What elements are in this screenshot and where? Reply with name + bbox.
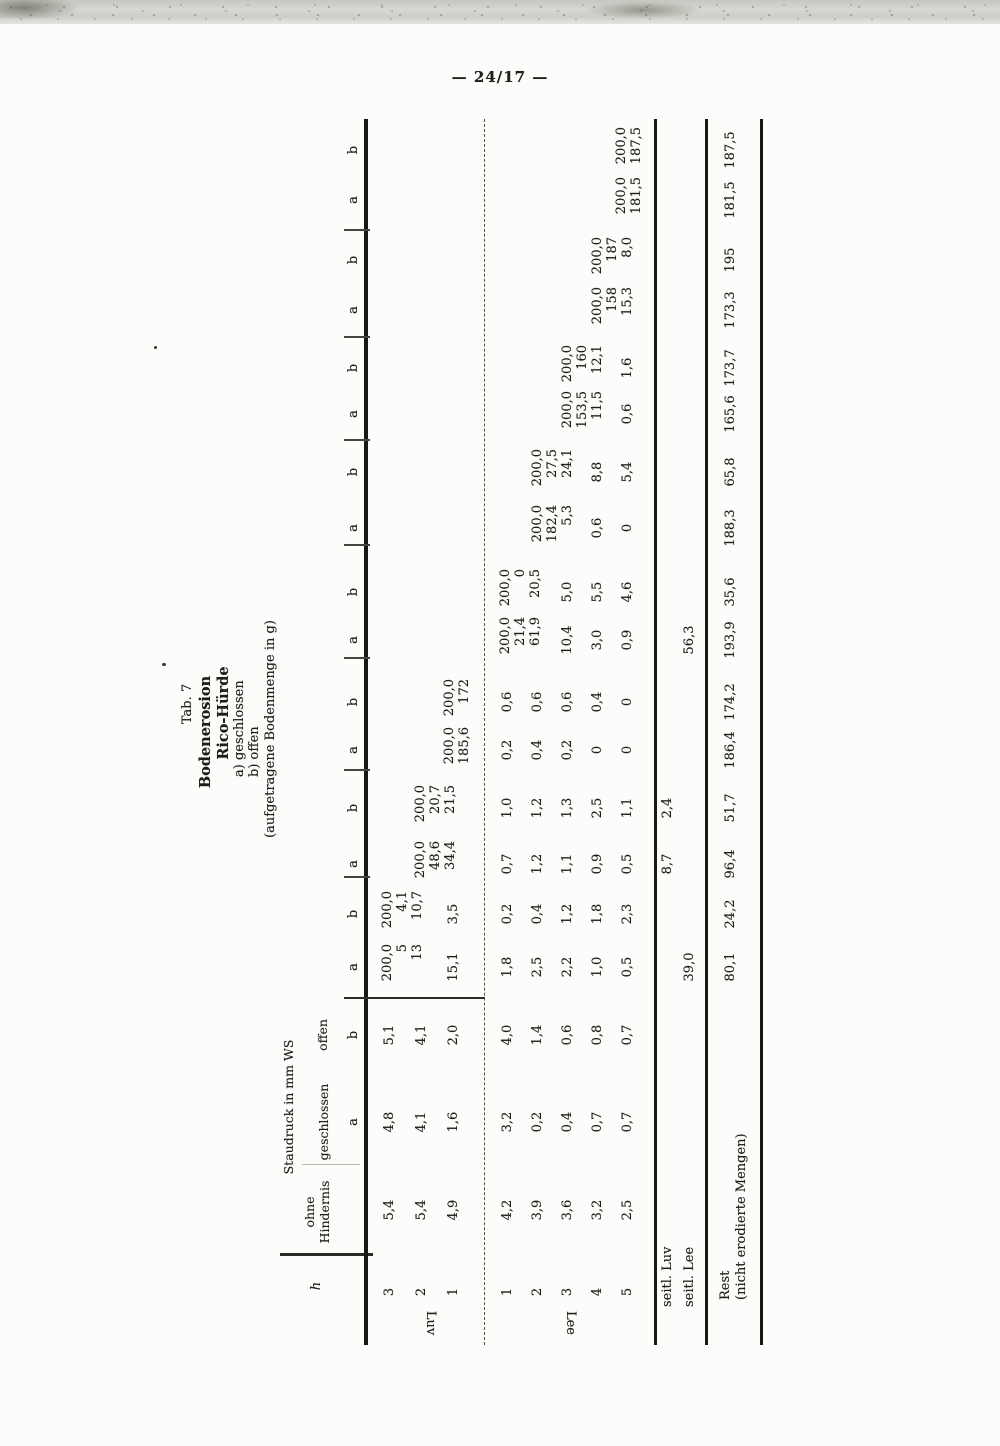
cell-ohne-lee5: 2,5 xyxy=(621,1200,635,1221)
header-geschlossen: geschlossen xyxy=(317,1084,331,1161)
stacked-cell-g1a: 200,0513 xyxy=(380,944,425,990)
stack-line: 24,1 xyxy=(560,449,575,495)
cell-g2a-rest: 96,4 xyxy=(724,850,738,879)
cell-g1b-lee3: 1,2 xyxy=(561,904,575,925)
stacked-cell-g8a: 200,0181,5 xyxy=(614,177,644,223)
stacked-cell-g1b: 200,04,110,7 xyxy=(380,891,425,937)
stack-line: 20,5 xyxy=(528,569,543,615)
cell-g3b-lee2: 0,6 xyxy=(531,692,545,713)
stack-line: 200,0 xyxy=(380,891,395,937)
cell-ohne-lee3: 3,6 xyxy=(561,1200,575,1221)
column-letter-g5a: a xyxy=(347,524,361,532)
stack-line: 200,0 xyxy=(590,237,605,283)
rule-above-rest xyxy=(705,119,708,1345)
cell-g2a-lee2: 1,2 xyxy=(531,854,545,875)
cell-ob-luv3: 5,1 xyxy=(383,1025,397,1046)
cell-g2a-lee4: 0,9 xyxy=(591,854,605,875)
cell-g4b-rest: 35,6 xyxy=(724,578,738,607)
stack-line: 5 xyxy=(395,944,410,990)
group-divider-tick xyxy=(344,336,370,338)
column-letter-g4a: a xyxy=(347,636,361,644)
caption-legend-a: a) geschlossen xyxy=(233,680,247,777)
column-letter-ga: a xyxy=(347,1118,361,1126)
divider-h-column xyxy=(280,1253,373,1256)
column-letter-g1b: b xyxy=(347,910,361,918)
rule-below-rest xyxy=(760,119,763,1345)
caption-legend-b: b) offen xyxy=(248,726,262,777)
cell-g1a-seitl_lee: 39,0 xyxy=(683,953,697,982)
cell-ohne-lee4: 3,2 xyxy=(591,1200,605,1221)
column-letter-g8a: a xyxy=(347,196,361,204)
scan-noise-blob xyxy=(588,2,698,18)
cell-ga-lee3: 0,4 xyxy=(561,1112,575,1133)
cell-g1b-lee4: 1,8 xyxy=(591,904,605,925)
cell-g5a-lee5: 0 xyxy=(621,524,635,532)
cell-g3a-lee1: 0,2 xyxy=(501,740,515,761)
stack-line: 15,3 xyxy=(620,287,635,333)
divider-ohne-staudruck xyxy=(302,1164,360,1165)
cell-g8b-rest: 187,5 xyxy=(724,131,738,168)
stack-line: 4,1 xyxy=(395,891,410,937)
page-number: — 24/17 — xyxy=(425,68,575,86)
cell-h-lee1: 1 xyxy=(501,1288,515,1296)
cell-ga-lee4: 0,7 xyxy=(591,1112,605,1133)
cell-ob-lee3: 0,6 xyxy=(561,1025,575,1046)
cell-g2a-seitl_luv: 8,7 xyxy=(661,854,675,875)
stacked-cell-g6b: 200,016012,1 xyxy=(560,345,605,391)
column-letter-g1a: a xyxy=(347,963,361,971)
cell-g2a-lee5: 0,5 xyxy=(621,854,635,875)
cell-g4a-lee4: 3,0 xyxy=(591,630,605,651)
stack-line: 200,0 xyxy=(498,617,513,663)
stack-line: 27,5 xyxy=(545,449,560,495)
cell-ob-luv1: 2,0 xyxy=(447,1025,461,1046)
stack-line: 200,0 xyxy=(590,287,605,333)
cell-g7a-rest: 173,3 xyxy=(724,291,738,328)
row-label-seitl-luv: seitl. Luv xyxy=(661,1246,675,1307)
cell-g8a-rest: 181,5 xyxy=(724,181,738,218)
cell-ohne-luv2: 5,4 xyxy=(415,1200,429,1221)
scanned-document-page: — 24/17 — Tab. 7 Bodenerosion Rico-Hürde… xyxy=(0,0,1000,1446)
cell-g3a-lee2: 0,4 xyxy=(531,740,545,761)
stack-line: 153,5 xyxy=(575,391,590,437)
row-label-seitl-lee: seitl. Lee xyxy=(683,1247,697,1307)
cell-ohne-luv1: 4,9 xyxy=(447,1200,461,1221)
divider-offen-groups xyxy=(344,997,485,999)
cell-ob-lee2: 1,4 xyxy=(531,1025,545,1046)
stack-line: 200,0 xyxy=(498,569,513,615)
stacked-cell-g4b: 200,0020,5 xyxy=(498,569,543,615)
stack-line: 200,0 xyxy=(442,679,457,725)
cell-g5a-rest: 188,3 xyxy=(724,509,738,546)
cell-g6a-rest: 165,6 xyxy=(724,395,738,432)
cell-h-luv3: 3 xyxy=(383,1288,397,1296)
stack-line: 200,0 xyxy=(614,177,629,223)
cell-g3b-lee3: 0,6 xyxy=(561,692,575,713)
column-letter-g3b: b xyxy=(347,698,361,706)
cell-ga-luv2: 4,1 xyxy=(415,1112,429,1133)
cell-g6a-lee5: 0,6 xyxy=(621,404,635,425)
cell-g6b-lee5: 1,6 xyxy=(621,358,635,379)
stack-line: 200,0 xyxy=(560,345,575,391)
stack-line: 200,0 xyxy=(413,841,428,887)
column-letter-g2a: a xyxy=(347,860,361,868)
column-letter-g7a: a xyxy=(347,306,361,314)
cell-g6b-rest: 173,7 xyxy=(724,349,738,386)
cell-ga-luv3: 4,8 xyxy=(383,1112,397,1133)
group-divider-tick xyxy=(344,439,370,441)
stacked-cell-g7a: 200,015815,3 xyxy=(590,287,635,333)
column-letter-g7b: b xyxy=(347,256,361,264)
cell-g4b-lee5: 4,6 xyxy=(621,582,635,603)
stack-line: 48,6 xyxy=(428,841,443,887)
group-divider-tick xyxy=(344,229,370,231)
group-divider-tick xyxy=(344,769,370,771)
stack-line: 160 xyxy=(575,345,590,391)
cell-g3b-lee1: 0,6 xyxy=(501,692,515,713)
stack-line: 200,0 xyxy=(442,727,457,773)
column-letter-g6a: a xyxy=(347,410,361,418)
cell-g5b-lee4: 8,8 xyxy=(591,462,605,483)
column-letter-g5b: b xyxy=(347,468,361,476)
scan-noise-blob xyxy=(0,0,80,20)
stack-line: 200,0 xyxy=(413,785,428,831)
column-letter-g2b: b xyxy=(347,804,361,812)
cell-g3a-lee4: 0 xyxy=(591,746,605,754)
stack-line: 21,4 xyxy=(513,617,528,663)
stack-line: 200,0 xyxy=(560,391,575,437)
column-letter-g8b: b xyxy=(347,146,361,154)
cell-h-lee4: 4 xyxy=(591,1288,605,1296)
column-letter-g4b: b xyxy=(347,588,361,596)
header-h: h xyxy=(310,1282,324,1290)
cell-g4b-lee4: 5,5 xyxy=(591,582,605,603)
cell-ob-lee5: 0,7 xyxy=(621,1025,635,1046)
stacked-cell-g2a: 200,048,634,4 xyxy=(413,841,458,887)
stacked-cell-g5b: 200,027,524,1 xyxy=(530,449,575,495)
stack-line: 182,4 xyxy=(545,505,560,551)
stack-line: 10,7 xyxy=(410,891,425,937)
stack-line: 11,5 xyxy=(590,391,605,437)
cell-g2b-rest: 51,7 xyxy=(724,794,738,823)
cell-g5b-rest: 65,8 xyxy=(724,458,738,487)
cell-g2a-lee1: 0,7 xyxy=(501,854,515,875)
cell-g2b-lee3: 1,3 xyxy=(561,798,575,819)
caption-unit: (aufgetragene Bodenmenge in g) xyxy=(264,620,278,838)
stack-line: 8,0 xyxy=(620,237,635,283)
cell-g3a-rest: 186,4 xyxy=(724,731,738,768)
cell-h-lee2: 2 xyxy=(531,1288,545,1296)
cell-g4b-lee3: 5,0 xyxy=(561,582,575,603)
cell-ohne-lee1: 4,2 xyxy=(501,1200,515,1221)
cell-g1a-lee2: 2,5 xyxy=(531,957,545,978)
stack-line: 158 xyxy=(605,287,620,333)
header-ohne-1: ohne xyxy=(303,1196,317,1227)
stack-line: 12,1 xyxy=(590,345,605,391)
stacked-cell-g7b: 200,01878,0 xyxy=(590,237,635,283)
cell-g1b-luv1: 3,5 xyxy=(447,904,461,925)
cell-g7b-rest: 195 xyxy=(724,248,738,273)
header-staudruck: Staudruck in mm WS xyxy=(282,1040,296,1175)
cell-ga-lee2: 0,2 xyxy=(531,1112,545,1133)
cell-g1a-lee1: 1,8 xyxy=(501,957,515,978)
cell-g4a-lee3: 10,4 xyxy=(561,626,575,655)
cell-ga-lee5: 0,7 xyxy=(621,1112,635,1133)
caption-subtitle: Rico-Hürde xyxy=(217,666,231,759)
stack-line: 200,0 xyxy=(530,505,545,551)
cell-g3b-lee4: 0,4 xyxy=(591,692,605,713)
cell-ob-luv2: 4,1 xyxy=(415,1025,429,1046)
stacked-cell-g5a: 200,0182,45,3 xyxy=(530,505,575,551)
luv-lee-divider xyxy=(484,119,485,1345)
cell-g2b-lee5: 1,1 xyxy=(621,798,635,819)
column-letter-ob: b xyxy=(347,1031,361,1039)
cell-g4a-rest: 193,9 xyxy=(724,621,738,658)
cell-ga-luv1: 1,6 xyxy=(447,1112,461,1133)
cell-g5b-lee5: 5,4 xyxy=(621,462,635,483)
cell-g1b-lee5: 2,3 xyxy=(621,904,635,925)
cell-g3a-lee3: 0,2 xyxy=(561,740,575,761)
stacked-cell-g6a: 200,0153,511,5 xyxy=(560,391,605,437)
cell-ohne-luv3: 5,4 xyxy=(383,1200,397,1221)
row-label-rest: Rest xyxy=(719,1271,733,1300)
stacked-cell-g8b: 200,0187,5 xyxy=(614,127,644,173)
cell-g1a-lee5: 0,5 xyxy=(621,957,635,978)
rotated-table-area: Tab. 7 Bodenerosion Rico-Hürde a) geschl… xyxy=(140,115,800,1350)
cell-g1b-lee2: 0,4 xyxy=(531,904,545,925)
column-letter-g3a: a xyxy=(347,746,361,754)
cell-g2b-lee4: 2,5 xyxy=(591,798,605,819)
row-label-rest-note: (nicht erodierte Mengen) xyxy=(735,1133,749,1300)
cell-h-lee5: 5 xyxy=(621,1288,635,1296)
header-ohne-2: Hindernis xyxy=(318,1181,332,1244)
scan-noise-band xyxy=(0,0,1000,24)
stack-line: 0 xyxy=(513,569,528,615)
cell-g1a-lee4: 1,0 xyxy=(591,957,605,978)
row-group-luv: Luv xyxy=(423,1311,437,1335)
stack-line: 185,6 xyxy=(457,727,472,773)
cell-g3b-rest: 174,2 xyxy=(724,683,738,720)
cell-h-luv2: 2 xyxy=(415,1288,429,1296)
stack-line: 187 xyxy=(605,237,620,283)
stack-line: 200,0 xyxy=(380,944,395,990)
cell-ob-lee4: 0,8 xyxy=(591,1025,605,1046)
cell-h-luv1: 1 xyxy=(447,1288,461,1296)
stack-line: 172 xyxy=(457,679,472,725)
cell-g5a-lee4: 0,6 xyxy=(591,518,605,539)
stack-line: 13 xyxy=(410,944,425,990)
header-offen: offen xyxy=(316,1019,330,1051)
cell-ohne-lee2: 3,9 xyxy=(531,1200,545,1221)
cell-g2b-lee1: 1,0 xyxy=(501,798,515,819)
stack-line: 61,9 xyxy=(528,617,543,663)
row-group-lee: Lee xyxy=(563,1311,577,1335)
stacked-cell-g4a: 200,021,461,9 xyxy=(498,617,543,663)
cell-g1b-lee1: 0,2 xyxy=(501,904,515,925)
cell-g1b-rest: 24,2 xyxy=(724,900,738,929)
stacked-cell-g3a: 200,0185,6 xyxy=(442,727,472,773)
header-rule xyxy=(364,119,368,1345)
stacked-cell-g2b: 200,020,721,5 xyxy=(413,785,458,831)
stack-line: 187,5 xyxy=(629,127,644,173)
stack-line: 20,7 xyxy=(428,785,443,831)
caption-title: Bodenerosion xyxy=(199,676,213,788)
cell-ga-lee1: 3,2 xyxy=(501,1112,515,1133)
rule-below-lee xyxy=(654,119,657,1345)
cell-g2b-lee2: 1,2 xyxy=(531,798,545,819)
group-divider-tick xyxy=(344,544,370,546)
cell-g1a-luv1: 15,1 xyxy=(447,953,461,982)
stack-line: 181,5 xyxy=(629,177,644,223)
stack-line: 200,0 xyxy=(530,449,545,495)
group-divider-tick xyxy=(344,657,370,659)
stack-line: 21,5 xyxy=(443,785,458,831)
cell-g4a-lee5: 0,9 xyxy=(621,630,635,651)
cell-g3b-lee5: 0 xyxy=(621,698,635,706)
stack-line: 34,4 xyxy=(443,841,458,887)
cell-h-lee3: 3 xyxy=(561,1288,575,1296)
cell-g2a-lee3: 1,1 xyxy=(561,854,575,875)
group-divider-tick xyxy=(344,876,370,878)
column-letter-g6b: b xyxy=(347,364,361,372)
stacked-cell-g3b: 200,0172 xyxy=(442,679,472,725)
caption-tab-number: Tab. 7 xyxy=(181,684,195,724)
cell-ob-lee1: 4,0 xyxy=(501,1025,515,1046)
cell-g3a-lee5: 0 xyxy=(621,746,635,754)
cell-g4a-seitl_lee: 56,3 xyxy=(683,626,697,655)
cell-g1a-lee3: 2,2 xyxy=(561,957,575,978)
cell-g1a-rest: 80,1 xyxy=(724,953,738,982)
stack-line: 5,3 xyxy=(560,505,575,551)
cell-g2b-seitl_luv: 2,4 xyxy=(661,798,675,819)
stack-line: 200,0 xyxy=(614,127,629,173)
